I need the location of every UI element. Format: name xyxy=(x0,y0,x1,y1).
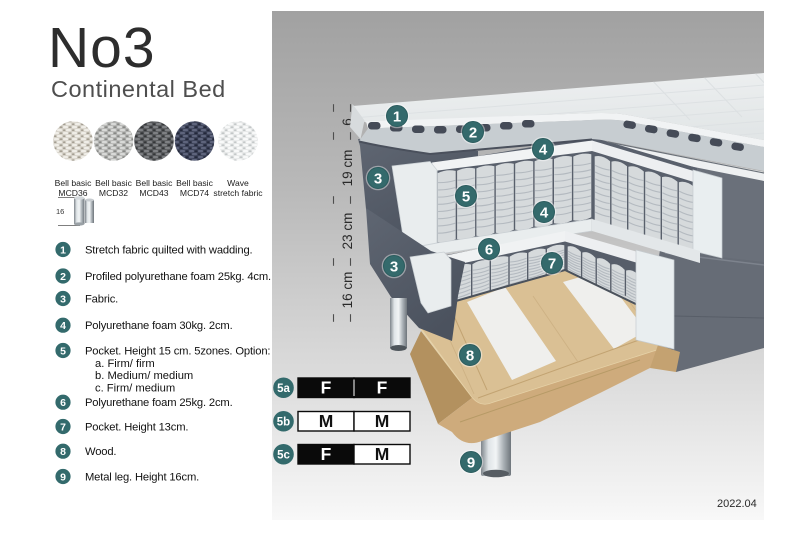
svg-text:3: 3 xyxy=(374,170,382,187)
svg-text:Profiled polyurethane foam 25k: Profiled polyurethane foam 25kg. 4cm. xyxy=(85,271,271,283)
svg-text:3: 3 xyxy=(390,258,398,275)
svg-text:2: 2 xyxy=(469,124,477,141)
svg-text:MCD32: MCD32 xyxy=(99,188,128,198)
svg-text:1: 1 xyxy=(60,244,66,256)
svg-text:MCD43: MCD43 xyxy=(139,188,168,198)
svg-text:Pocket. Height 15 cm. 5zones.: Pocket. Height 15 cm. 5zones. Option: xyxy=(85,346,270,358)
svg-text:Wood.: Wood. xyxy=(85,446,116,458)
svg-text:4: 4 xyxy=(539,141,548,158)
svg-text:stretch fabric: stretch fabric xyxy=(213,188,263,198)
svg-text:4: 4 xyxy=(60,320,66,332)
svg-text:16 cm: 16 cm xyxy=(340,272,355,309)
svg-text:Bell basic: Bell basic xyxy=(55,178,92,188)
svg-text:M: M xyxy=(375,411,390,431)
svg-text:3: 3 xyxy=(60,293,66,305)
svg-text:23 cm: 23 cm xyxy=(340,213,355,250)
svg-text:MCD74: MCD74 xyxy=(180,188,209,198)
svg-text:2022.04: 2022.04 xyxy=(717,498,757,510)
svg-text:7: 7 xyxy=(60,421,66,433)
svg-text:F: F xyxy=(321,377,332,397)
svg-text:5: 5 xyxy=(60,345,66,357)
svg-text:5a: 5a xyxy=(277,383,290,395)
svg-text:7: 7 xyxy=(548,255,556,272)
svg-text:F: F xyxy=(321,444,332,464)
svg-text:2: 2 xyxy=(60,271,66,283)
svg-text:c. Firm/ medium: c. Firm/ medium xyxy=(95,383,175,395)
svg-text:5b: 5b xyxy=(277,416,290,428)
svg-text:6: 6 xyxy=(60,397,66,409)
svg-text:6: 6 xyxy=(485,241,493,258)
svg-text:Wave: Wave xyxy=(227,178,249,188)
svg-text:Continental Bed: Continental Bed xyxy=(51,76,226,102)
svg-text:Pocket. Height 13cm.: Pocket. Height 13cm. xyxy=(85,422,188,434)
svg-text:Bell basic: Bell basic xyxy=(95,178,132,188)
svg-text:Fabric.: Fabric. xyxy=(85,294,118,306)
svg-text:b. Medium/ medium: b. Medium/ medium xyxy=(95,370,193,382)
svg-text:MCD36: MCD36 xyxy=(58,188,87,198)
svg-text:M: M xyxy=(319,411,334,431)
svg-text:9: 9 xyxy=(467,454,475,471)
svg-text:Stretch fabric quilted with wa: Stretch fabric quilted with wadding. xyxy=(85,245,253,257)
svg-text:16: 16 xyxy=(56,207,64,216)
svg-text:8: 8 xyxy=(466,347,474,364)
svg-text:Polyurethane foam 25kg. 2cm.: Polyurethane foam 25kg. 2cm. xyxy=(85,397,233,409)
svg-text:M: M xyxy=(375,444,390,464)
svg-text:F: F xyxy=(377,377,388,397)
svg-text:a. Firm/ firm: a. Firm/ firm xyxy=(95,358,155,370)
svg-text:Metal leg. Height 16cm.: Metal leg. Height 16cm. xyxy=(85,472,199,484)
svg-text:1: 1 xyxy=(393,108,401,125)
svg-text:Polyurethane foam 30kg. 2cm.: Polyurethane foam 30kg. 2cm. xyxy=(85,320,233,332)
svg-text:Bell basic: Bell basic xyxy=(136,178,173,188)
svg-text:8: 8 xyxy=(60,446,66,458)
svg-text:No3: No3 xyxy=(48,16,156,80)
svg-text:19 cm: 19 cm xyxy=(340,150,355,187)
svg-text:5c: 5c xyxy=(277,449,290,461)
svg-text:5: 5 xyxy=(462,188,470,205)
svg-text:Bell basic: Bell basic xyxy=(176,178,213,188)
svg-text:4: 4 xyxy=(540,204,549,221)
svg-text:9: 9 xyxy=(60,471,66,483)
